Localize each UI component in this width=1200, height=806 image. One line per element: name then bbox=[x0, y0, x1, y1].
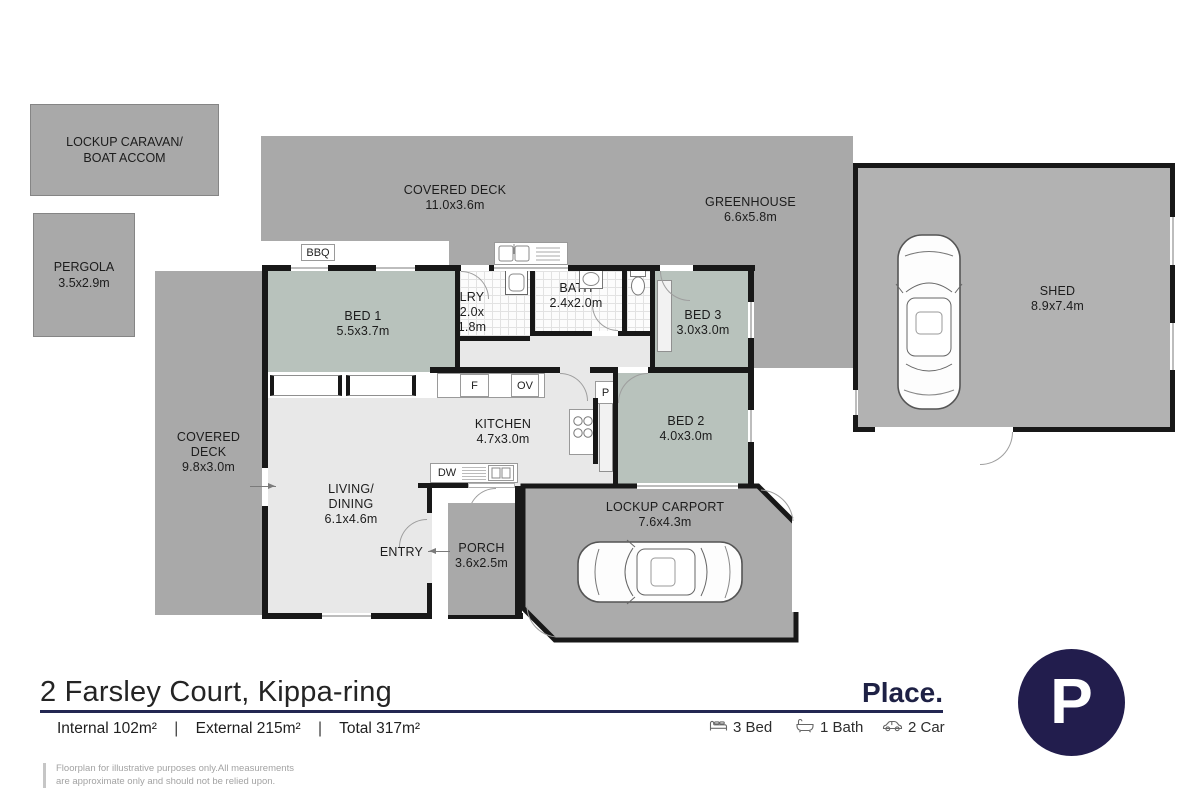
room-label: PERGOLA bbox=[34, 259, 134, 275]
room-dims: 3.5x2.9m bbox=[34, 275, 134, 291]
room-lockup-caravan: LOCKUP CARAVAN/ BOAT ACCOM bbox=[30, 104, 219, 196]
shed-window bbox=[1170, 323, 1175, 370]
wall-left bbox=[262, 265, 268, 619]
drainer-icon bbox=[462, 465, 486, 481]
wall-kitchen-right bbox=[593, 398, 598, 464]
fridge-box: F bbox=[460, 374, 489, 397]
window bbox=[748, 302, 754, 338]
feature-baths: 1 Bath bbox=[795, 718, 863, 737]
wall-hall-bottom bbox=[430, 367, 560, 373]
disclaimer: Floorplan for illustrative purposes only… bbox=[43, 763, 296, 788]
window bbox=[376, 265, 415, 271]
divider bbox=[40, 710, 943, 713]
shed-window bbox=[1170, 217, 1175, 265]
area-stats: Internal 102m² | External 215m² | Total … bbox=[57, 720, 420, 738]
shed-label: SHED 8.9x7.4m bbox=[975, 284, 1140, 314]
outdoor-sink-bench bbox=[494, 242, 568, 265]
kitchen-sink-icon bbox=[488, 465, 514, 481]
bed2-label: BED 2 4.0x3.0m bbox=[618, 414, 754, 444]
bed2-wardrobe bbox=[599, 400, 613, 472]
covered-deck-left-label: COVERED DECK 9.8x3.0m bbox=[166, 430, 251, 475]
brand-logo-mark: P bbox=[1018, 649, 1125, 756]
wall-bath-wc bbox=[622, 271, 627, 331]
bed1-label: BED 1 5.5x3.7m bbox=[278, 309, 448, 339]
wall-laundry-bottom bbox=[455, 336, 530, 341]
feature-cars: 2 Car bbox=[882, 718, 945, 736]
covered-deck-top-label: COVERED DECK 11.0x3.6m bbox=[350, 183, 560, 213]
shed-opening bbox=[875, 427, 978, 432]
page-title: 2 Farsley Court, Kippa-ring bbox=[40, 676, 392, 709]
toilet-icon bbox=[629, 269, 647, 297]
brand-logo-text: Place. bbox=[803, 677, 943, 709]
window bbox=[322, 613, 371, 619]
bath-door-opening bbox=[592, 331, 618, 336]
porch-label: PORCH 3.6x2.5m bbox=[448, 541, 515, 571]
entry-arrow bbox=[428, 551, 450, 552]
car-icon bbox=[890, 232, 968, 412]
separator: | bbox=[318, 720, 322, 737]
bbq-box: BBQ bbox=[301, 244, 335, 261]
wall-laundry-bath bbox=[530, 271, 535, 336]
feature-beds: 3 Bed bbox=[709, 718, 772, 737]
window bbox=[748, 410, 754, 442]
dishwasher-box: DW bbox=[434, 464, 460, 482]
entry-label: ENTRY bbox=[345, 545, 423, 560]
separator: | bbox=[174, 720, 178, 737]
car-icon bbox=[882, 718, 903, 736]
bed-icon bbox=[709, 718, 728, 737]
wall-porch-top bbox=[418, 483, 468, 488]
wall-right bbox=[748, 265, 754, 492]
room-pergola: PERGOLA 3.5x2.9m bbox=[33, 213, 135, 337]
laundry-door-opening bbox=[461, 265, 489, 271]
car-icon bbox=[575, 536, 745, 608]
washing-machine-icon bbox=[505, 269, 528, 295]
room-label: LOCKUP CARAVAN/ BOAT ACCOM bbox=[55, 134, 195, 166]
kitchen-label: KITCHEN 4.7x3.0m bbox=[447, 417, 559, 447]
bed1-robe bbox=[270, 375, 342, 396]
bed2-door-opening bbox=[618, 367, 648, 373]
feature-label: 1 Bath bbox=[820, 719, 863, 736]
stove-icon bbox=[569, 409, 596, 455]
wall-entry-jamb-bottom bbox=[427, 583, 432, 619]
logo-letter: P bbox=[1050, 664, 1093, 738]
sink-icon bbox=[494, 242, 568, 265]
shed-door-arc bbox=[980, 432, 1013, 465]
bed1-robe bbox=[346, 375, 416, 396]
shed-window bbox=[853, 390, 858, 415]
oven-box: OV bbox=[511, 374, 539, 397]
greenhouse-label: GREENHOUSE 6.6x5.8m bbox=[648, 195, 853, 225]
wall-wc-bed3 bbox=[650, 265, 655, 367]
wall-bed1-right bbox=[455, 271, 460, 372]
external-area: External 215m² bbox=[196, 720, 301, 737]
wall-bed2-left bbox=[613, 373, 618, 486]
entry-corridor-opening bbox=[432, 613, 448, 619]
window bbox=[291, 265, 328, 271]
floorplan-page: LOCKUP CARAVAN/ BOAT ACCOM PERGOLA 3.5x2… bbox=[0, 0, 1200, 806]
bath-icon bbox=[795, 718, 815, 737]
total-area: Total 317m² bbox=[339, 720, 420, 737]
feature-label: 3 Bed bbox=[733, 719, 772, 736]
living-label: LIVING/ DINING 6.1x4.6m bbox=[312, 482, 390, 527]
carport-label: LOCKUP CARPORT 7.6x4.3m bbox=[555, 500, 775, 530]
deck-bench-strip bbox=[262, 241, 449, 265]
wall-entry-jamb-top bbox=[427, 483, 432, 513]
slider-arrow bbox=[250, 486, 276, 487]
internal-area: Internal 102m² bbox=[57, 720, 157, 737]
feature-label: 2 Car bbox=[908, 719, 945, 736]
basin-icon bbox=[579, 269, 603, 289]
